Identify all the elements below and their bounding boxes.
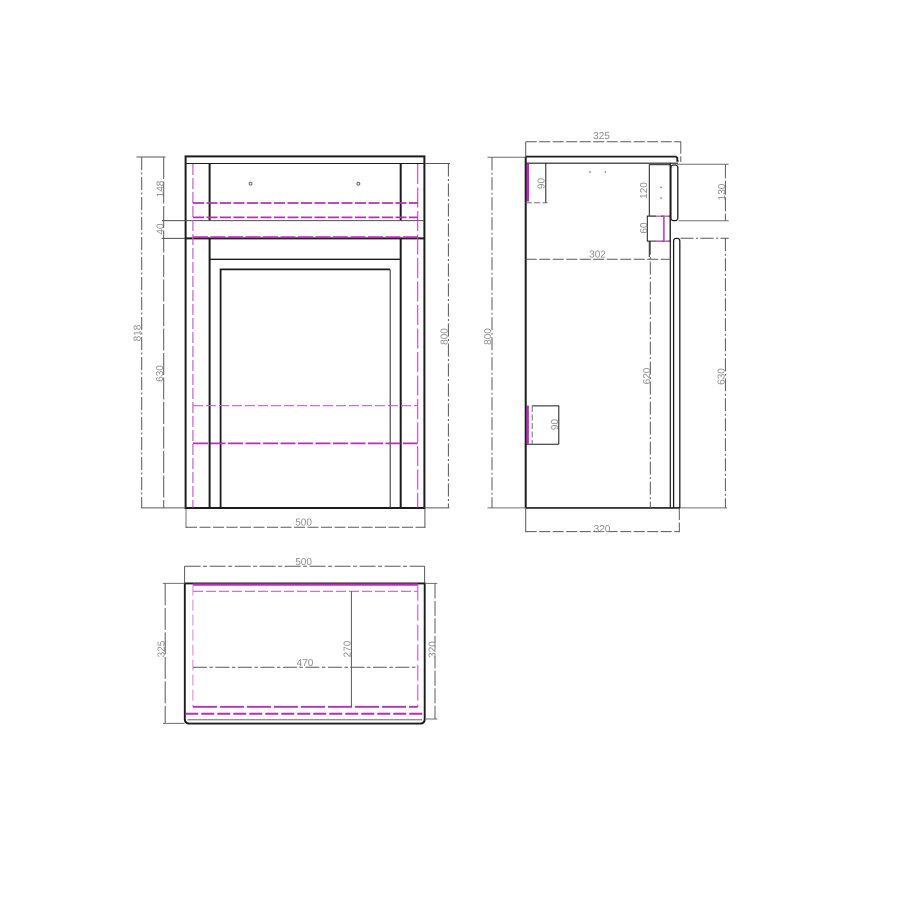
svg-text:90: 90: [536, 178, 547, 190]
svg-text:320: 320: [427, 641, 438, 658]
svg-text:148: 148: [155, 180, 166, 197]
svg-text:130: 130: [717, 183, 728, 200]
svg-text:120: 120: [639, 182, 650, 199]
svg-text:40: 40: [155, 223, 166, 235]
svg-text:500: 500: [295, 518, 312, 529]
svg-text:60: 60: [639, 222, 650, 234]
svg-text:470: 470: [297, 658, 314, 669]
svg-text:320: 320: [594, 524, 611, 535]
svg-text:90: 90: [550, 419, 561, 431]
svg-text:630: 630: [155, 365, 166, 382]
svg-text:630: 630: [717, 368, 728, 385]
svg-text:325: 325: [156, 640, 167, 657]
svg-text:270: 270: [343, 640, 354, 657]
svg-text:302: 302: [589, 250, 606, 261]
svg-text:800: 800: [440, 328, 451, 345]
svg-text:500: 500: [295, 557, 312, 568]
svg-text:818: 818: [133, 324, 144, 341]
svg-text:325: 325: [593, 131, 610, 142]
svg-text:800: 800: [483, 328, 494, 345]
svg-text:620: 620: [642, 367, 653, 384]
